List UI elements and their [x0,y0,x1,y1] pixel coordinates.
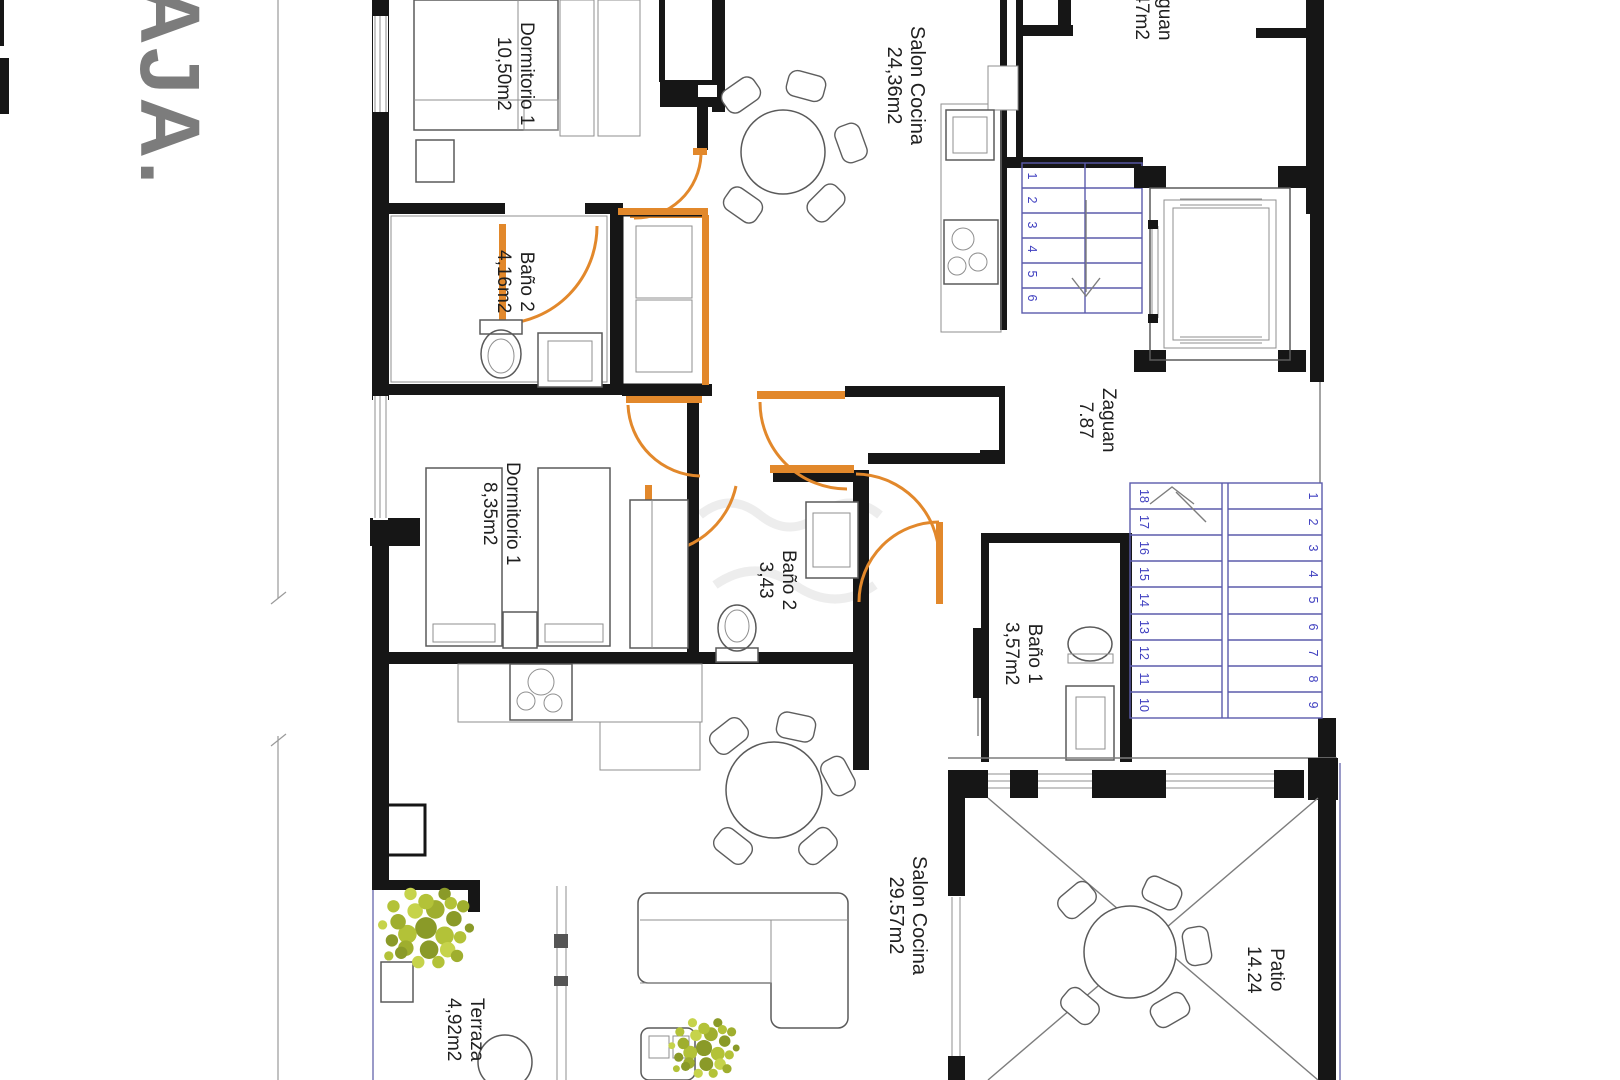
room-label-terraza: Terraza4,92m2 [442,998,488,1061]
dining-table-lower [706,710,858,868]
cooktop-icon [510,664,572,720]
stair-number: 2 [1025,197,1039,204]
stair-number: 4 [1025,246,1039,253]
stair-number: 3 [1306,545,1320,552]
stair-number: 2 [1306,519,1320,526]
room-label-bano2-lower: Baño 23,43 [754,550,800,610]
stair-number: 5 [1025,271,1039,278]
patio-table [1054,873,1213,1031]
room-label-dormitorio1-lower: Dormitorio 18,35m2 [478,462,524,565]
stair-number: 9 [1306,702,1320,709]
stair-number: 8 [1306,676,1320,683]
stair-number: 11 [1137,673,1151,686]
sink-icon [538,333,602,387]
stair-number: 12 [1137,646,1151,660]
floor-plan-drawing [0,0,1620,1080]
stairs-upper [1022,163,1142,313]
stair-number: 4 [1306,571,1320,578]
kitchen-lower [458,664,702,770]
stair-number: 13 [1137,620,1151,634]
toilet-icon [1068,627,1113,663]
room-label-salon-upper: Salon Cocina24,36m2 [882,26,928,145]
dining-table-upper [718,69,870,227]
room-label-bano1: Baño 13,57m2 [1000,622,1046,685]
stair-number: 16 [1137,541,1151,555]
stair-number: 1 [1306,493,1320,500]
elevator [1134,166,1306,372]
bathroom1-fixtures [1066,627,1114,760]
stair-number: 15 [1137,567,1151,581]
room-label-zaguan-mid: Zaguan7.87 [1074,388,1120,452]
room-label-zaguan-upper: Zaguan7,47m2 [1130,0,1176,40]
room-label-patio: Patio14.24 [1242,946,1288,994]
stair-number: 18 [1137,489,1151,503]
wardrobe [618,208,709,385]
toilet-icon [716,605,758,662]
stair-number: 5 [1306,597,1320,604]
stair-number: 10 [1137,698,1151,712]
reference-lines [0,0,286,1080]
room-label-dormitorio1-upper: Dormitorio 110,50m2 [492,22,538,125]
stairs-lower [1130,483,1322,718]
shower-icon [806,502,858,578]
toilet-icon [480,320,522,378]
kitchen-sink-icon [946,110,994,160]
room-label-bano2-upper: Baño 24,16m2 [492,250,538,313]
floor-plan-sheet: AJA. [0,0,1620,1080]
stair-number: 6 [1306,624,1320,631]
sofa [638,893,848,1028]
stair-number: 6 [1025,295,1039,302]
sink-icon [1066,686,1114,760]
stair-number: 3 [1025,222,1039,229]
cooktop-icon [944,220,998,284]
arrow-up-icon [1150,487,1206,522]
stair-number: 7 [1306,650,1320,657]
plant-icon [378,888,474,969]
arrow-down-icon [1072,200,1100,296]
entry-door-arc [630,148,707,218]
patio [948,758,1338,1080]
stair-number: 17 [1137,515,1151,529]
room-label-salon-lower: Salon Cocina29.57m2 [884,856,930,975]
stair-number: 1 [1025,173,1039,180]
stair-number: 14 [1137,593,1151,607]
